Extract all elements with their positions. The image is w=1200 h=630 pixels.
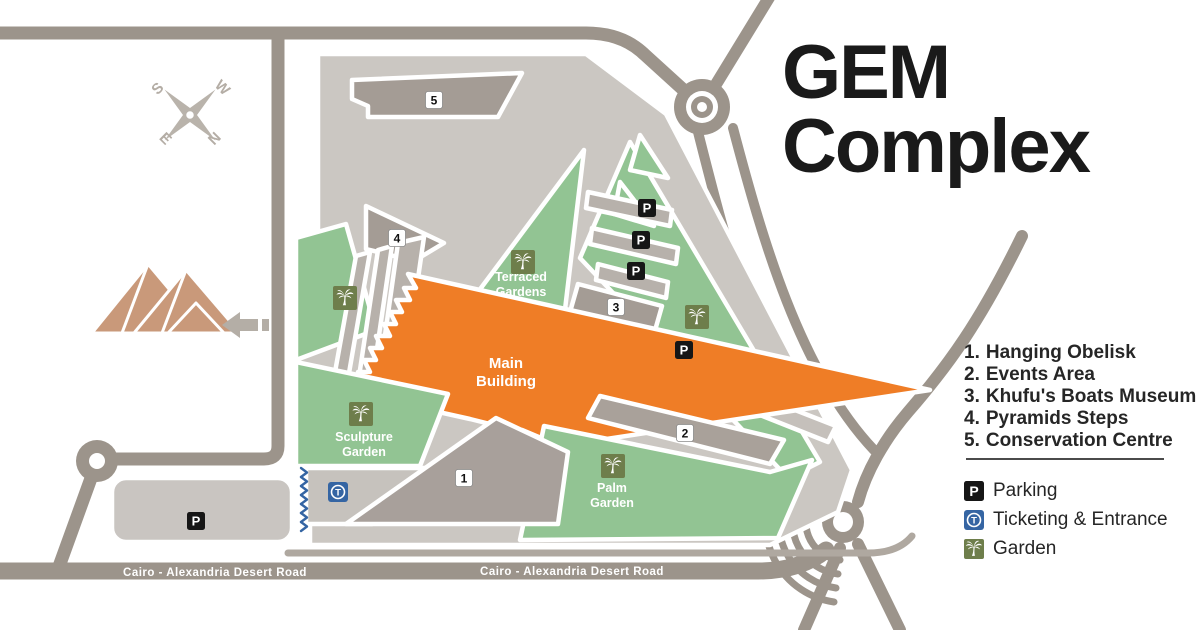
key-label-garden: Garden xyxy=(993,538,1056,560)
ticketing-icon: T xyxy=(328,482,348,502)
parking-icon: P xyxy=(632,231,650,249)
svg-text:5: 5 xyxy=(431,94,438,108)
road-left-vertical xyxy=(110,36,278,459)
ticketing-icon: T xyxy=(964,510,984,530)
parking-lot-west xyxy=(112,478,292,542)
garden-icon xyxy=(349,402,373,426)
list-item: 1. Hanging Obelisk xyxy=(964,342,1196,364)
list-item-number: 5. xyxy=(964,430,980,452)
svg-text:T: T xyxy=(335,488,341,499)
list-item-label: Khufu's Boats Museum xyxy=(986,386,1196,408)
sculpture-garden-label-1: Sculpture xyxy=(335,430,393,444)
list-item: 5. Conservation Centre xyxy=(964,430,1196,452)
sculpture-garden-label-2: Garden xyxy=(342,445,386,459)
palm-garden-label-1: Palm xyxy=(597,481,627,495)
list-item-label: Pyramids Steps xyxy=(986,408,1129,430)
key-row-garden: Garden xyxy=(964,534,1168,563)
marker-2: 2 xyxy=(677,425,694,442)
road-left-south xyxy=(57,470,94,572)
numbered-list: 1. Hanging Obelisk 2. Events Area 3. Khu… xyxy=(964,342,1196,452)
page-title: GEM Complex xyxy=(782,36,1192,185)
garden-icon xyxy=(685,305,709,329)
svg-text:P: P xyxy=(969,483,978,499)
parking-icon: P xyxy=(638,199,656,217)
svg-text:3: 3 xyxy=(613,301,620,315)
marker-3: 3 xyxy=(608,299,625,316)
svg-text:P: P xyxy=(192,514,201,529)
svg-text:4: 4 xyxy=(394,232,401,246)
parking-icon: P xyxy=(964,481,984,501)
pyramids-icon xyxy=(92,264,240,333)
key-row-ticketing: T Ticketing & Entrance xyxy=(964,505,1168,534)
list-item-label: Events Area xyxy=(986,364,1095,386)
svg-text:1: 1 xyxy=(461,472,468,486)
list-item-label: Conservation Centre xyxy=(986,430,1173,452)
marker-1: 1 xyxy=(456,470,473,487)
list-item: 4. Pyramids Steps xyxy=(964,408,1196,430)
parking-icon: P xyxy=(675,341,693,359)
list-item-number: 4. xyxy=(964,408,980,430)
main-building-label-1: Main xyxy=(489,355,523,372)
list-item-number: 3. xyxy=(964,386,980,408)
road-label-cairo-2: Cairo - Alexandria Desert Road xyxy=(480,566,664,578)
road-exit-se xyxy=(858,544,900,630)
roundabout-west xyxy=(76,440,118,482)
marker-4: 4 xyxy=(389,230,406,247)
key-label-parking: Parking xyxy=(993,480,1057,502)
title-line-2: Complex xyxy=(782,110,1192,184)
compass-rose: S W E N xyxy=(148,77,234,149)
list-item: 3. Khufu's Boats Museum xyxy=(964,386,1196,408)
title-line-1: GEM xyxy=(782,36,1192,110)
parking-icon: P xyxy=(187,512,205,530)
palm-garden-label-2: Garden xyxy=(590,496,634,510)
map-key: P Parking T Ticketing & Entrance Garden xyxy=(964,476,1168,563)
garden-icon xyxy=(601,454,625,478)
marker-5: 5 xyxy=(426,92,443,109)
roundabout-north xyxy=(674,79,730,135)
svg-text:P: P xyxy=(643,201,652,216)
list-item-label: Hanging Obelisk xyxy=(986,342,1136,364)
list-item: 2. Events Area xyxy=(964,364,1196,386)
list-item-number: 2. xyxy=(964,364,980,386)
key-label-ticketing: Ticketing & Entrance xyxy=(993,509,1168,531)
terraced-gardens-label-2: Gardens xyxy=(496,285,547,299)
garden-icon xyxy=(511,250,535,274)
svg-text:P: P xyxy=(632,264,641,279)
compass-e: E xyxy=(156,129,175,148)
svg-text:P: P xyxy=(680,343,689,358)
list-item-number: 1. xyxy=(964,342,980,364)
garden-icon xyxy=(333,286,357,310)
parking-icon: P xyxy=(627,262,645,280)
compass-s: S xyxy=(148,79,167,98)
svg-text:P: P xyxy=(637,233,646,248)
compass-w: W xyxy=(211,77,234,100)
key-divider xyxy=(966,458,1164,460)
road-label-cairo-1: Cairo - Alexandria Desert Road xyxy=(123,567,307,579)
garden-icon xyxy=(964,539,984,559)
svg-text:2: 2 xyxy=(682,427,689,441)
key-row-parking: P Parking xyxy=(964,476,1168,505)
main-building-label-2: Building xyxy=(476,373,536,390)
svg-text:T: T xyxy=(971,515,977,526)
